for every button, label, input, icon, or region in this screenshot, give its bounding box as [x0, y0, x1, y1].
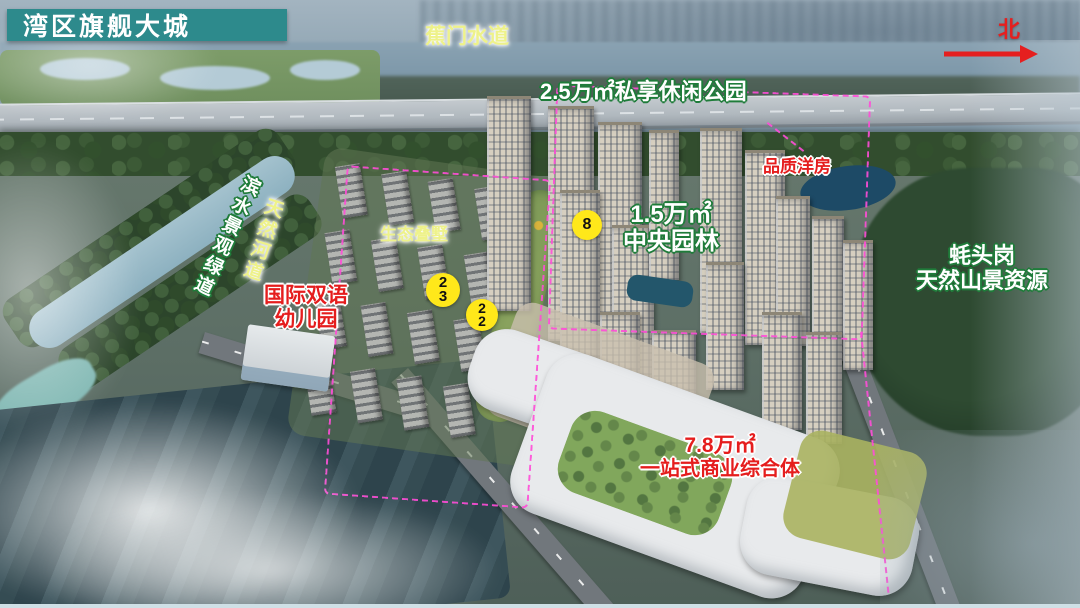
mountain-line2: 天然山景资源 [912, 269, 1052, 294]
villa-building [407, 309, 440, 364]
wetland-pond [290, 60, 360, 80]
wetland-pond [160, 66, 270, 90]
plot-marker-2-2: 2 2 [466, 299, 498, 331]
waterway-label: 蕉门水道 [425, 20, 509, 50]
villa-building [360, 302, 393, 357]
marker-number: 3 [439, 290, 447, 304]
bottom-edge-strip [0, 604, 1080, 608]
mountain-line1: 蚝头岗 [912, 244, 1052, 269]
residential-tower [487, 96, 531, 311]
leisure-park-label: 2.5万㎡私享休闲公园 [540, 74, 747, 106]
commercial-line2: 一站式商业综合体 [630, 458, 810, 480]
commercial-label: 7.8万㎡ 一站式商业综合体 [630, 434, 810, 480]
plot-marker-8: 8 [572, 210, 602, 240]
villa-building [381, 170, 414, 225]
villa-building [397, 375, 430, 430]
mountain-ridge [852, 168, 1080, 436]
central-garden-label: 1.5万㎡ 中央园林 [616, 202, 726, 256]
plot-marker-2-3: 2 3 [426, 273, 460, 307]
villa-building [350, 368, 383, 423]
north-arrow-icon [940, 44, 1040, 64]
project-title-banner: 湾区旗舰大城 [7, 9, 287, 41]
north-compass: 北 [940, 12, 1050, 69]
villa-building [324, 229, 357, 284]
masterplan-rendering: 湾区旗舰大城 蕉门水道 2.5万㎡私享休闲公园 品质洋房 1.5万㎡ 中央园林 … [0, 0, 1080, 608]
quality-residence-label: 品质洋房 [763, 152, 831, 177]
commercial-line1: 7.8万㎡ [630, 434, 810, 458]
eco-villa-label: 生态叠墅 [380, 220, 448, 245]
kindergarten-building [241, 324, 336, 392]
villa-building [335, 163, 368, 218]
kindergarten-label: 国际双语 幼儿园 [256, 284, 356, 331]
kindergarten-line1: 国际双语 [256, 284, 356, 308]
marker-number: 8 [583, 217, 592, 232]
kindergarten-line2: 幼儿园 [256, 308, 356, 332]
central-garden-line1: 1.5万㎡ [616, 202, 726, 229]
garden-house-building [843, 240, 873, 370]
wetland-pond [40, 58, 130, 80]
office-building [806, 332, 842, 444]
central-garden-line2: 中央园林 [616, 229, 726, 256]
north-label: 北 [968, 12, 1050, 44]
office-building [762, 312, 802, 430]
project-title: 湾区旗舰大城 [23, 7, 191, 43]
marker-number: 2 [478, 315, 486, 328]
tree-band [0, 132, 1080, 176]
mountain-label: 蚝头岗 天然山景资源 [912, 244, 1052, 293]
